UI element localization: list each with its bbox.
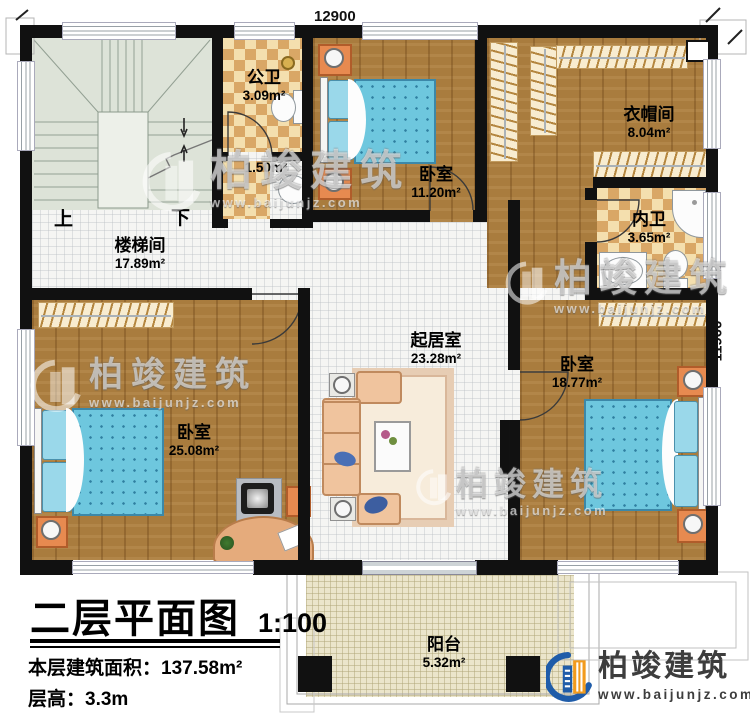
floor-area-text: 本层建筑面积：137.58m²: [28, 653, 242, 680]
wall-segment: [20, 560, 73, 575]
company-logo: 柏竣建筑 www.baijunjz.com: [546, 652, 750, 704]
flowers: [389, 437, 397, 445]
wall-segment: [253, 560, 362, 575]
title-underline-thin: [30, 646, 280, 648]
wall-segment: [313, 210, 430, 222]
wall-segment: [678, 560, 718, 575]
balcony-post: [298, 656, 332, 692]
window: [704, 388, 720, 505]
clothes-rack: [38, 302, 174, 328]
page-title: 二层平面图: [30, 586, 240, 644]
pillow: [674, 401, 698, 453]
label-bedroom-right: 卧室18.77m²: [552, 355, 602, 390]
window: [18, 62, 34, 150]
bed: [354, 79, 436, 164]
label-bedroom-top: 卧室11.20m²: [411, 165, 461, 200]
clothes-rack: [556, 45, 688, 69]
label-wash-nook: 1.50m²: [245, 160, 288, 175]
lamp: [41, 520, 61, 540]
bed-headboard: [34, 408, 42, 514]
shower-drain: [692, 200, 697, 205]
floor-plan: 楼梯间17.89m² 公卫3.09m² 1.50m² 卧室11.20m² 衣帽间…: [0, 0, 750, 721]
wall-segment: [302, 25, 313, 228]
window: [63, 23, 175, 39]
dimension-right: 11900: [709, 321, 726, 362]
pillow: [674, 455, 698, 507]
company-name: 柏竣建筑: [598, 652, 750, 682]
sofa: [322, 398, 361, 496]
window: [558, 562, 678, 573]
wall-segment: [585, 188, 597, 200]
wall-segment: [20, 150, 32, 330]
label-ensuite-bath: 内卫3.65m²: [628, 210, 671, 245]
drawing-scale: 1:100: [258, 608, 327, 639]
wall-segment: [212, 25, 223, 228]
lamp: [334, 500, 352, 518]
lamp: [683, 370, 703, 390]
title-block: 二层平面图 1:100: [30, 586, 327, 644]
wall-segment: [508, 200, 520, 370]
wall-segment: [590, 288, 718, 300]
wall-segment: [212, 152, 228, 161]
label-stairwell: 楼梯间17.89m²: [115, 236, 166, 271]
stair-down-label: 下: [171, 203, 190, 230]
wall-segment: [477, 25, 718, 38]
bed-headboard: [320, 77, 328, 163]
lamp: [333, 376, 351, 394]
wall-segment: [298, 288, 310, 560]
wall-segment: [20, 25, 32, 62]
label-living-room: 起居室23.28m²: [411, 331, 462, 366]
floor-height-text: 层高：3.3m: [28, 684, 128, 711]
sliding-door: [362, 561, 477, 575]
flowers: [381, 430, 390, 439]
label-balcony: 阳台5.32m²: [423, 635, 466, 670]
company-website: www.baijunjz.com: [598, 687, 750, 702]
plant: [220, 536, 234, 550]
wall-segment: [508, 420, 520, 560]
window: [363, 23, 477, 39]
lamp: [324, 172, 344, 192]
label-bedroom-left: 卧室25.08m²: [169, 423, 219, 458]
title-underline: [30, 639, 280, 643]
clothes-rack: [598, 302, 708, 327]
window: [704, 193, 720, 278]
wall-segment: [475, 560, 558, 575]
bed: [584, 399, 672, 511]
room-stairwell: [32, 38, 212, 210]
bed: [72, 408, 164, 516]
window: [18, 330, 34, 445]
window: [73, 562, 253, 573]
coffee-table: [374, 421, 411, 472]
label-cloakroom: 衣帽间8.04m²: [624, 105, 675, 140]
wall-segment: [20, 445, 32, 575]
wall-segment: [212, 219, 228, 228]
tv: [500, 420, 509, 475]
computer-screen: [247, 489, 268, 508]
lamp: [324, 48, 344, 68]
window: [235, 23, 294, 39]
balcony-post: [506, 656, 540, 692]
stair-up-label: 上: [54, 204, 73, 231]
armchair: [356, 371, 402, 404]
company-logo-icon: [546, 652, 592, 704]
wall-segment: [32, 288, 252, 300]
clothes-rack: [490, 42, 518, 162]
toilet: [663, 250, 688, 279]
label-public-bath: 公卫3.09m²: [243, 68, 286, 103]
clothes-rack: [593, 151, 708, 178]
wall-segment: [475, 25, 487, 222]
wall-segment: [593, 177, 718, 188]
flue-notch: [686, 40, 710, 62]
clothes-rack: [530, 46, 557, 136]
window: [704, 60, 720, 148]
dimension-top: 12900: [314, 8, 356, 25]
wall-segment: [175, 25, 235, 38]
lamp: [683, 514, 703, 534]
sink: [603, 257, 643, 285]
